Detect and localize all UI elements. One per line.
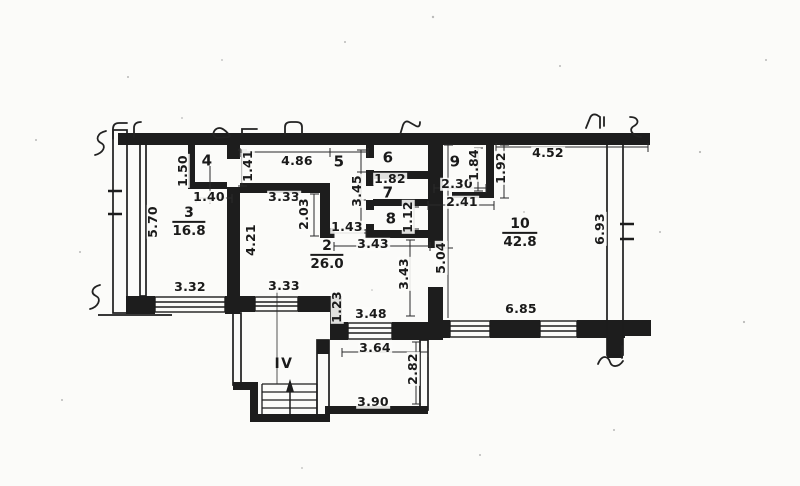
dim-label-5-70: 5.70	[147, 205, 160, 239]
dim-label-1-84: 1.84	[468, 148, 481, 182]
room3-bottom-wall-right	[225, 296, 240, 314]
central-wall-lower	[428, 287, 443, 340]
room-2-label: 2 26.0	[310, 239, 343, 273]
dim-label-2-82: 2.82	[407, 352, 420, 386]
room-10-label: 10 42.8	[502, 217, 537, 251]
hall-bottom-wall-left	[240, 296, 255, 312]
dim-label-3-64: 3.64	[358, 342, 392, 355]
dim-label-5-04: 5.04	[435, 241, 448, 275]
dimension-lines	[196, 143, 648, 404]
room-8-number: 8	[386, 212, 397, 227]
dim-label-1-92: 1.92	[495, 151, 508, 185]
dim-label-3-90: 3.90	[356, 396, 390, 409]
room-2-area: 26.0	[310, 256, 343, 273]
dim-label-3-48: 3.48	[354, 308, 388, 321]
room10-bottom-wall-a	[443, 320, 450, 338]
room-7-number: 7	[383, 186, 394, 201]
floor-plan-page: 4.86 1.40 3.33 1.82 1.43 3.43 2.30 2.41 …	[0, 0, 800, 486]
stairs-direction-arrow	[286, 379, 294, 418]
scan-noise	[35, 16, 767, 469]
dim-label-3-43-mid: 3.43	[356, 238, 390, 251]
dim-label-1-40: 1.40	[192, 191, 226, 204]
top-outer-wall	[118, 133, 650, 145]
left-outer-wall	[113, 130, 127, 313]
room10-bottom-wall-c	[577, 320, 625, 338]
dim-label-4-52: 4.52	[531, 147, 565, 160]
room-2-number: 2	[310, 239, 343, 256]
stairwell-label: IV	[273, 357, 294, 371]
dim-label-4-21: 4.21	[245, 223, 258, 257]
right-wall-cross-stub	[623, 320, 651, 336]
dim-label-1-12: 1.12	[402, 200, 415, 234]
dim-label-1-50: 1.50	[177, 154, 190, 188]
vent-mark-7	[586, 114, 604, 128]
dim-label-1-41: 1.41	[242, 149, 255, 183]
dim-label-6-85: 6.85	[504, 303, 538, 316]
room-5-number: 5	[334, 155, 345, 170]
divider-wall-lower	[227, 187, 240, 313]
stairwell-left-wall	[233, 313, 241, 385]
dim-label-1-23: 1.23	[331, 290, 344, 324]
landing-window-wall-left	[342, 322, 348, 340]
window-landing	[348, 323, 392, 339]
landing-window-wall-right	[392, 322, 428, 340]
room-10-area: 42.8	[502, 234, 537, 251]
dim-label-6-93: 6.93	[594, 212, 607, 246]
window-room3	[155, 297, 225, 312]
dim-label-3-32: 3.32	[173, 281, 207, 294]
dim-label-3-45: 3.45	[351, 174, 364, 208]
window-room10-right	[540, 321, 577, 337]
dim-label-2-41: 2.41	[445, 196, 479, 209]
hall-bottom-wall-right	[298, 296, 330, 312]
room-3-label: 3 16.8	[172, 206, 205, 240]
room-4-number: 4	[202, 154, 213, 169]
dim-label-2-03: 2.03	[298, 197, 311, 231]
room10-bottom-wall-b	[490, 320, 540, 338]
room3-bottom-wall-left	[126, 296, 155, 314]
stair-step-jog-side	[250, 390, 258, 416]
dim-label-3-33-bottom: 3.33	[267, 280, 301, 293]
room-6-number: 6	[383, 151, 394, 166]
stair-step-jog-top	[233, 382, 258, 390]
stairs-right-wall-notch	[317, 340, 329, 354]
dim-label-3-43-vert: 3.43	[398, 257, 411, 291]
room9-bottom-wall-a	[428, 192, 433, 198]
break-mark-top-left	[95, 131, 106, 155]
room-3-number: 3	[172, 206, 205, 223]
window-hall	[255, 297, 298, 311]
vent-mark-6	[400, 121, 420, 135]
porch-right-wall	[420, 340, 428, 410]
block-left-wall-a	[366, 143, 374, 158]
window-room10-left	[450, 321, 490, 337]
room-9-number: 9	[450, 155, 461, 170]
room-10-number: 10	[502, 217, 537, 234]
dim-label-4-86: 4.86	[280, 155, 314, 168]
floor-plan-drawing	[0, 0, 800, 486]
dim-label-1-43: 1.43	[330, 221, 364, 234]
block-left-wall-c	[366, 200, 374, 210]
break-mark-bottom-left	[90, 285, 100, 309]
divider-wall-upper	[227, 143, 240, 159]
room-3-area: 16.8	[172, 223, 205, 240]
